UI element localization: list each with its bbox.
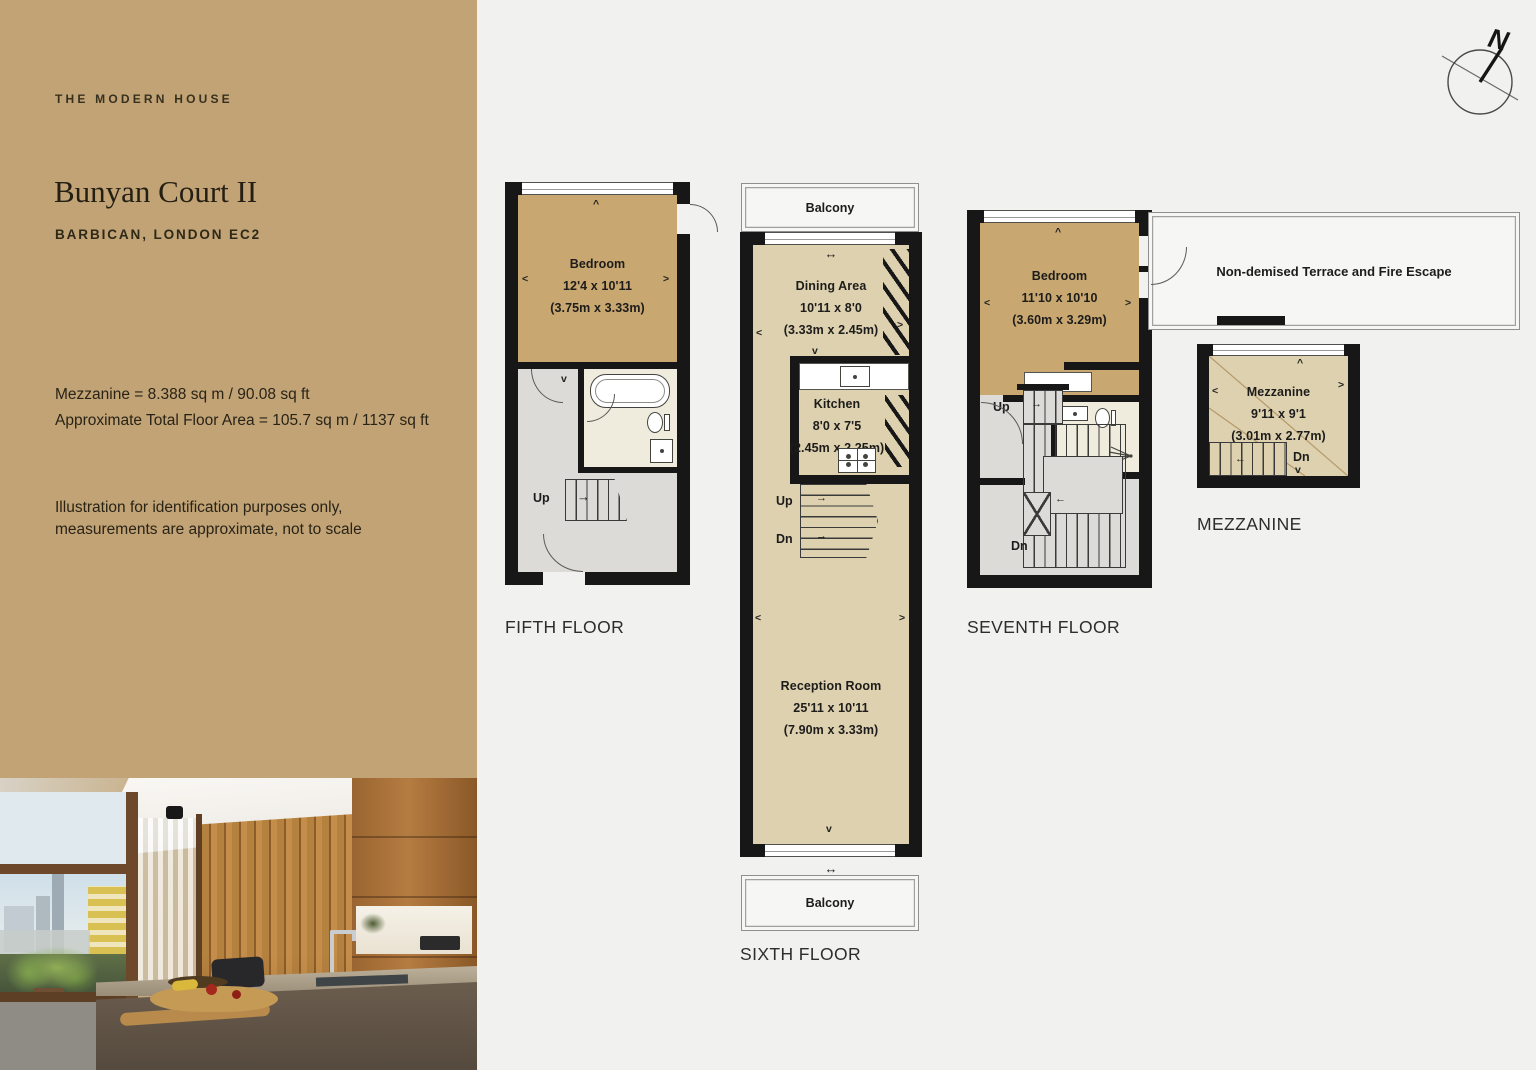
- photo-frame-vertical: [196, 814, 202, 998]
- window: [984, 210, 1135, 223]
- stair-arrow: →: [816, 493, 827, 504]
- photo-niche-objects: [420, 936, 460, 950]
- photo-frame-top: [0, 864, 132, 874]
- dimension-arrow: >: [1125, 298, 1131, 309]
- dimension-arrow: v: [1295, 465, 1301, 476]
- dimension-arrow: >: [897, 320, 903, 331]
- internal-wall: [980, 478, 1025, 485]
- up-label: Up: [533, 492, 550, 505]
- seventh-floor-caption: SEVENTH FLOOR: [967, 617, 1120, 638]
- balcony-bottom: Balcony: [741, 875, 919, 931]
- sliding-door: [765, 844, 895, 857]
- fifth-floor-plan: Bedroom 12'4 x 10'11 (3.75m x 3.33m) ^ <…: [505, 182, 690, 585]
- dimension-arrow: <: [1212, 386, 1218, 397]
- stair-arrow: →: [1031, 399, 1042, 410]
- kitchen-sink: [840, 366, 870, 387]
- sink: [1062, 406, 1088, 421]
- dimension-arrow: ^: [1297, 358, 1303, 369]
- sixth-floor-main: ↔ Dining Area 10'11 x 8'0 (3.33m x 2.45m…: [740, 232, 922, 857]
- staircase-up: [1023, 390, 1063, 424]
- photo-niche-plant: [360, 908, 386, 934]
- staircase-down: [1209, 442, 1287, 476]
- sixth-floor-plan: Balcony ↔ Dining Area 10'11 x 8'0 (3.33m…: [740, 183, 922, 913]
- dimension-arrow: ^: [593, 199, 599, 210]
- up-label: Up: [776, 495, 793, 508]
- balcony-label: Balcony: [806, 896, 855, 910]
- mezzanine-caption: MEZZANINE: [1197, 514, 1302, 535]
- mezzanine-label: Mezzanine 9'11 x 9'1 (3.01m x 2.77m): [1197, 382, 1360, 448]
- internal-wall: [578, 369, 584, 473]
- fifth-floor-caption: FIFTH FLOOR: [505, 617, 624, 638]
- photo-sky-upper: [0, 792, 132, 870]
- photo-fruit-red: [232, 990, 241, 999]
- dimension-arrow: <: [756, 328, 762, 339]
- stair-return: [1043, 456, 1123, 514]
- kitchen-wall: [799, 356, 909, 363]
- terrace-door-arc: [1151, 247, 1187, 285]
- balcony-label: Balcony: [806, 201, 855, 215]
- dn-label: Dn: [1293, 451, 1310, 464]
- balcony-top: Balcony: [741, 183, 919, 232]
- internal-wall: [578, 467, 677, 473]
- stair-arrow: →: [577, 490, 590, 503]
- dimension-arrow: >: [1338, 380, 1344, 391]
- page-title: Bunyan Court II: [54, 174, 257, 210]
- dimension-arrow: v: [826, 824, 832, 835]
- sliding-door: [765, 232, 895, 245]
- toilet: [647, 412, 663, 433]
- sink: [650, 439, 673, 463]
- total-area-line: Approximate Total Floor Area = 105.7 sq …: [55, 408, 429, 434]
- window: [1213, 344, 1344, 356]
- photo-spotlight: [166, 806, 183, 819]
- door-arc: [690, 204, 718, 232]
- brand-sidebar: THE MODERN HOUSE Bunyan Court II BARBICA…: [0, 0, 477, 778]
- bedroom-label: Bedroom 12'4 x 10'11 (3.75m x 3.33m): [518, 254, 677, 320]
- sawtooth-windows: [885, 395, 909, 467]
- seventh-floor-plan: Bedroom 11'10 x 10'10 (3.60m x 3.29m) ^ …: [967, 210, 1152, 588]
- property-location: BARBICAN, LONDON EC2: [55, 227, 261, 242]
- dimension-arrow: v: [812, 346, 818, 357]
- mezzanine-plan: Mezzanine 9'11 x 9'1 (3.01m x 2.77m) ^ <…: [1197, 344, 1360, 488]
- sliding-door-arrow: ↔: [740, 862, 922, 875]
- dimension-arrow: >: [663, 274, 669, 285]
- photo-plant: [6, 946, 98, 994]
- window: [522, 182, 673, 195]
- kitchen-photo: [0, 778, 477, 1070]
- stair-void: [1023, 492, 1051, 536]
- dimension-arrow: <: [522, 274, 528, 285]
- terrace-label: Non-demised Terrace and Fire Escape: [1216, 264, 1451, 279]
- photo-frame-vertical: [126, 792, 138, 1004]
- stair-arrow: ←: [1235, 454, 1246, 465]
- dimension-arrow: >: [899, 613, 905, 624]
- stair-arrow: →: [816, 531, 827, 542]
- dn-label: Dn: [776, 533, 793, 546]
- brand-name: THE MODERN HOUSE: [55, 92, 233, 106]
- photo-curtain-window: [138, 818, 198, 996]
- terrace: Non-demised Terrace and Fire Escape: [1148, 212, 1520, 330]
- terrace-wall-block: [1217, 316, 1285, 325]
- door-opening: [677, 204, 690, 234]
- photo-faucet-spout: [352, 930, 356, 941]
- photo-fruit-red: [206, 984, 217, 995]
- hob: [838, 448, 876, 473]
- sawtooth-windows: [883, 249, 909, 355]
- reception-room-label: Reception Room 25'11 x 10'11 (7.90m x 3.…: [740, 676, 922, 742]
- floor-area-summary: Mezzanine = 8.388 sq m / 90.08 sq ft App…: [55, 382, 429, 434]
- staircase: [800, 484, 878, 558]
- internal-wall: [1064, 362, 1139, 370]
- dimension-arrow: <: [755, 613, 761, 624]
- disclaimer: Illustration for identification purposes…: [55, 497, 362, 540]
- dimension-arrow: ^: [1055, 227, 1061, 238]
- internal-wall: [518, 362, 677, 369]
- dimension-arrow: <: [984, 298, 990, 309]
- entry-door-opening: [543, 572, 585, 585]
- compass-north-icon: N: [1432, 20, 1532, 120]
- compass-n-label: N: [1485, 23, 1512, 57]
- kitchen-wall: [790, 475, 909, 484]
- toilet-cistern: [664, 414, 670, 431]
- sixth-floor-caption: SIXTH FLOOR: [740, 944, 861, 965]
- photo-faucet: [330, 930, 334, 974]
- dn-label: Dn: [1011, 540, 1028, 553]
- stair-arrow: ←: [1055, 494, 1066, 505]
- mezzanine-area-line: Mezzanine = 8.388 sq m / 90.08 sq ft: [55, 382, 429, 408]
